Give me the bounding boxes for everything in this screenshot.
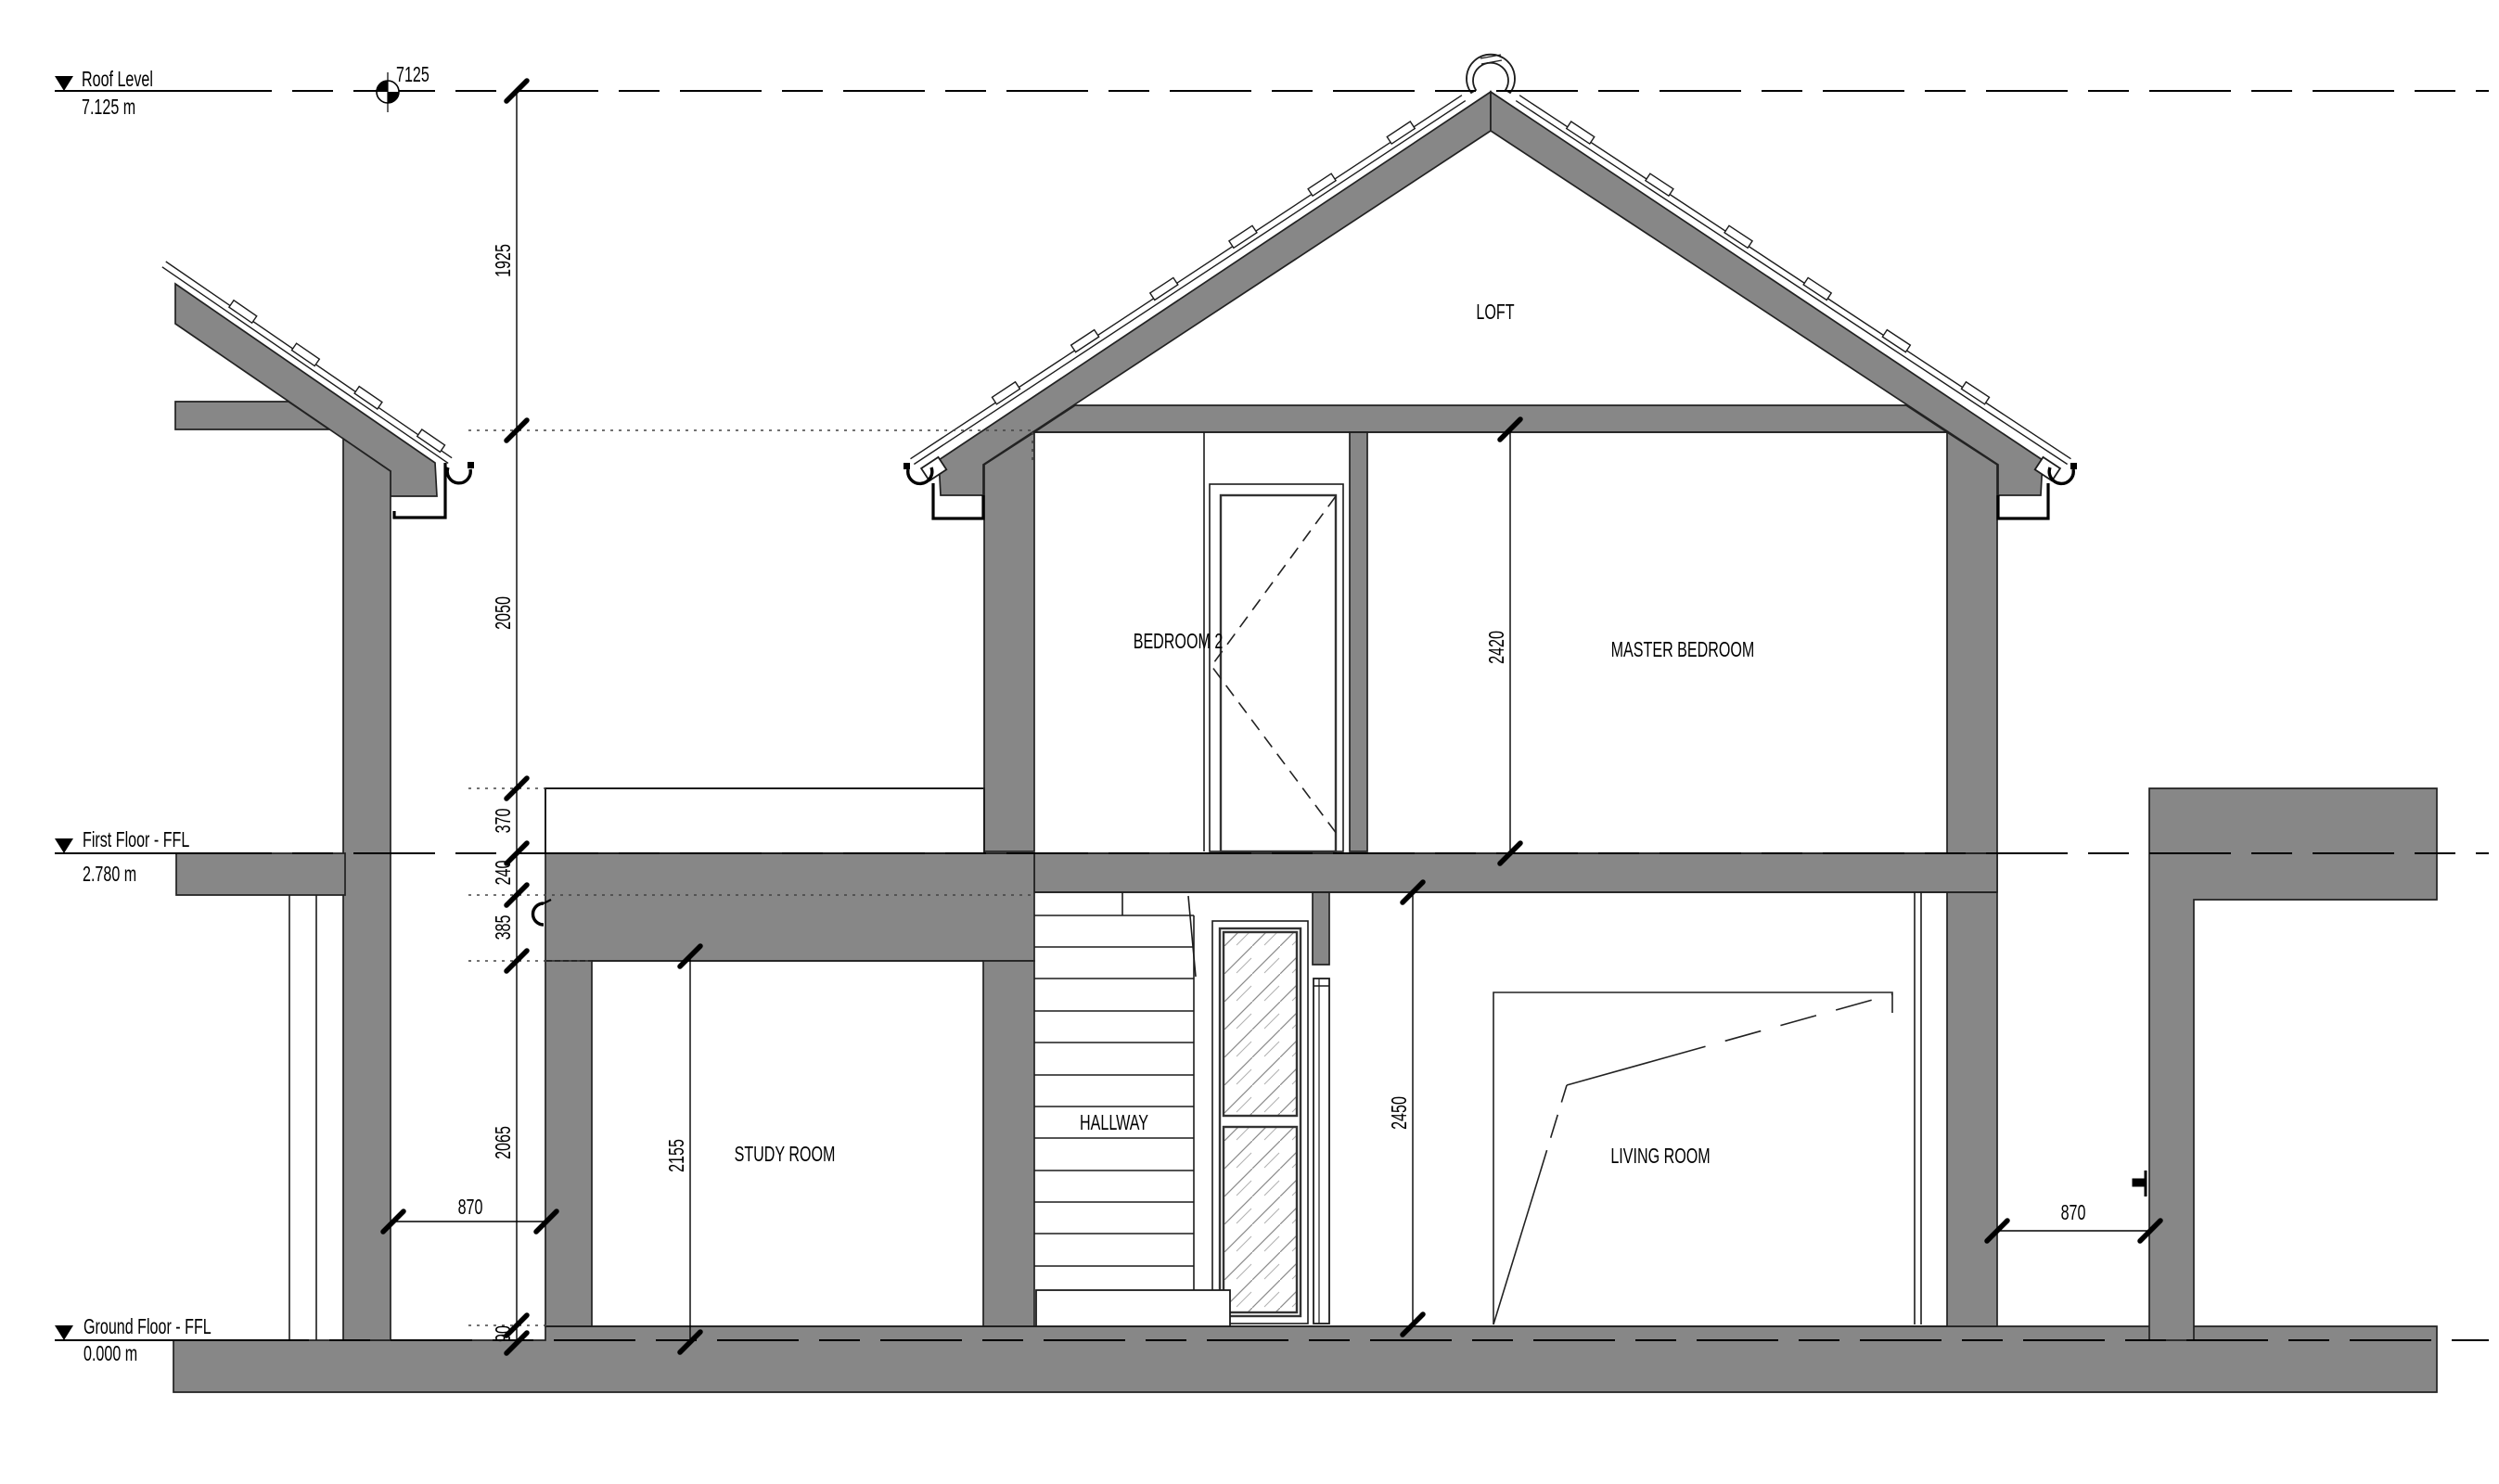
svg-text:370: 370 [492, 809, 515, 834]
svg-text:1925: 1925 [492, 244, 515, 277]
svg-text:MASTER BEDROOM: MASTER BEDROOM [1611, 638, 1755, 661]
svg-text:870: 870 [2061, 1201, 2086, 1224]
svg-text:2050: 2050 [492, 596, 515, 630]
svg-text:LOFT: LOFT [1476, 301, 1514, 324]
svg-text:870: 870 [458, 1196, 483, 1219]
svg-text:Ground Floor - FFL: Ground Floor - FFL [83, 1315, 211, 1338]
svg-text:2.780 m: 2.780 m [83, 863, 136, 886]
svg-text:2450: 2450 [1388, 1096, 1411, 1130]
svg-text:Roof Level: Roof Level [82, 68, 153, 91]
svg-text:240: 240 [492, 861, 515, 886]
svg-text:7.125 m: 7.125 m [82, 96, 135, 119]
svg-text:2420: 2420 [1485, 631, 1508, 664]
svg-text:2065: 2065 [492, 1126, 515, 1159]
svg-text:385: 385 [492, 915, 515, 940]
svg-text:BEDROOM 2: BEDROOM 2 [1134, 630, 1224, 653]
svg-text:STUDY ROOM: STUDY ROOM [735, 1143, 836, 1166]
svg-text:LIVING ROOM: LIVING ROOM [1610, 1145, 1710, 1168]
svg-text:First Floor - FFL: First Floor - FFL [83, 828, 189, 851]
svg-text:2155: 2155 [665, 1139, 688, 1172]
svg-text:HALLWAY: HALLWAY [1080, 1111, 1148, 1134]
svg-text:0.000 m: 0.000 m [83, 1342, 137, 1365]
svg-text:90: 90 [492, 1325, 515, 1342]
svg-text:7125: 7125 [396, 63, 429, 86]
